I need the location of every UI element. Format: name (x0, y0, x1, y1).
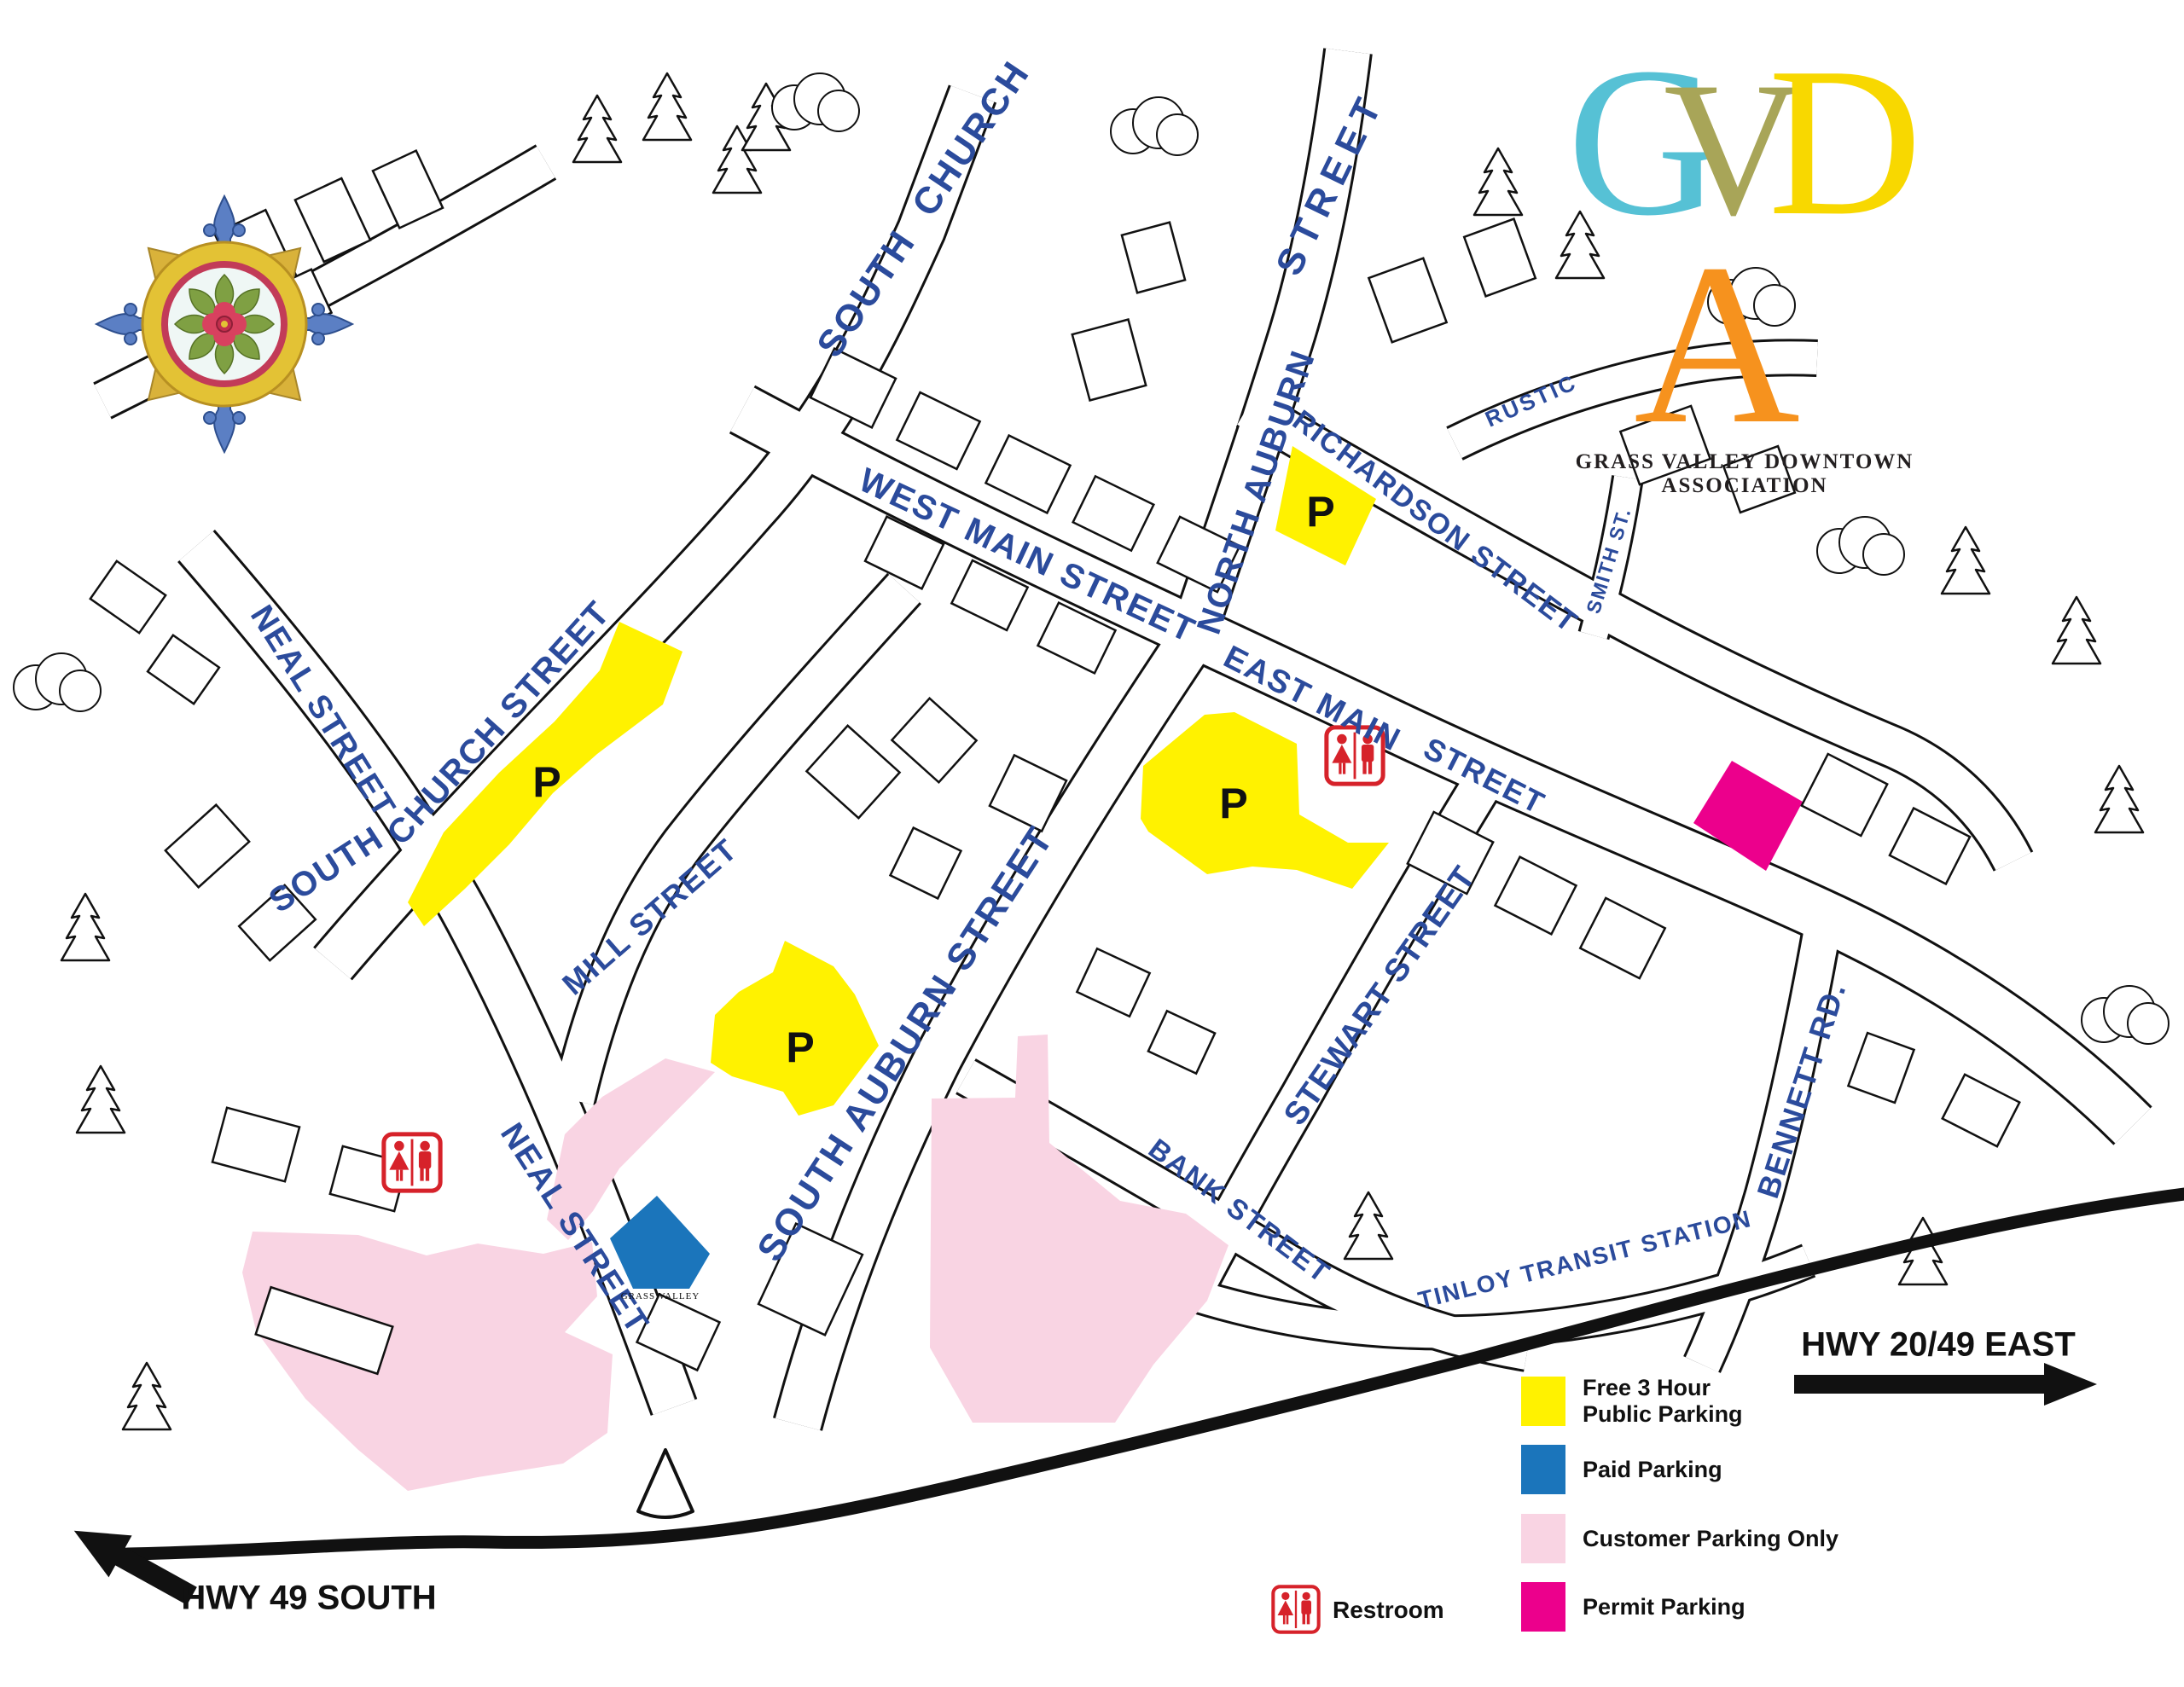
restroom-icon-neal (384, 1134, 440, 1191)
permit-parking-swatch (1521, 1582, 1565, 1632)
gvda-logo-letters: GVDA (1536, 44, 1954, 449)
logo-letter-d: D (1769, 44, 1923, 241)
legend-item-restroom: Restroom (1271, 1585, 1444, 1634)
gvda-logo: GVDA GRASS VALLEY DOWNTOWN ASSOCIATION (1536, 44, 1954, 498)
hwy-east-label: HWY 20/49 EAST (1801, 1326, 2076, 1365)
hwy-east-arrow (1794, 1363, 2097, 1406)
legend-item-paid-parking: Paid Parking (1521, 1445, 1722, 1494)
grass-valley-sign: GRASS VALLEY (621, 1291, 700, 1301)
free-parking-swatch (1521, 1377, 1565, 1426)
parking-p-church-street: P (532, 757, 561, 807)
hwy-south-label: HWY 49 SOUTH (181, 1580, 436, 1618)
legend-item-customer-parking: Customer Parking Only (1521, 1514, 1838, 1563)
traffic-island (638, 1450, 693, 1517)
restroom-icon-legend (1271, 1585, 1321, 1634)
parking-p-richardson: P (1306, 487, 1334, 536)
parking-map: SOUTH CHURCH WEST MAIN STREET NORTH AUBU… (0, 0, 2184, 1687)
legend-item-free-parking: Free 3 HourPublic Parking (1521, 1375, 1743, 1428)
legend-item-permit-parking: Permit Parking (1521, 1582, 1745, 1632)
parking-p-mill: P (786, 1023, 814, 1072)
logo-letter-a: A (1634, 246, 1800, 443)
parking-p-east-main: P (1219, 779, 1247, 828)
lot-customer-southwest (242, 1232, 613, 1491)
paid-parking-swatch (1521, 1445, 1565, 1494)
gvda-tagline: GRASS VALLEY DOWNTOWN ASSOCIATION (1536, 450, 1954, 498)
customer-parking-swatch (1521, 1514, 1565, 1563)
